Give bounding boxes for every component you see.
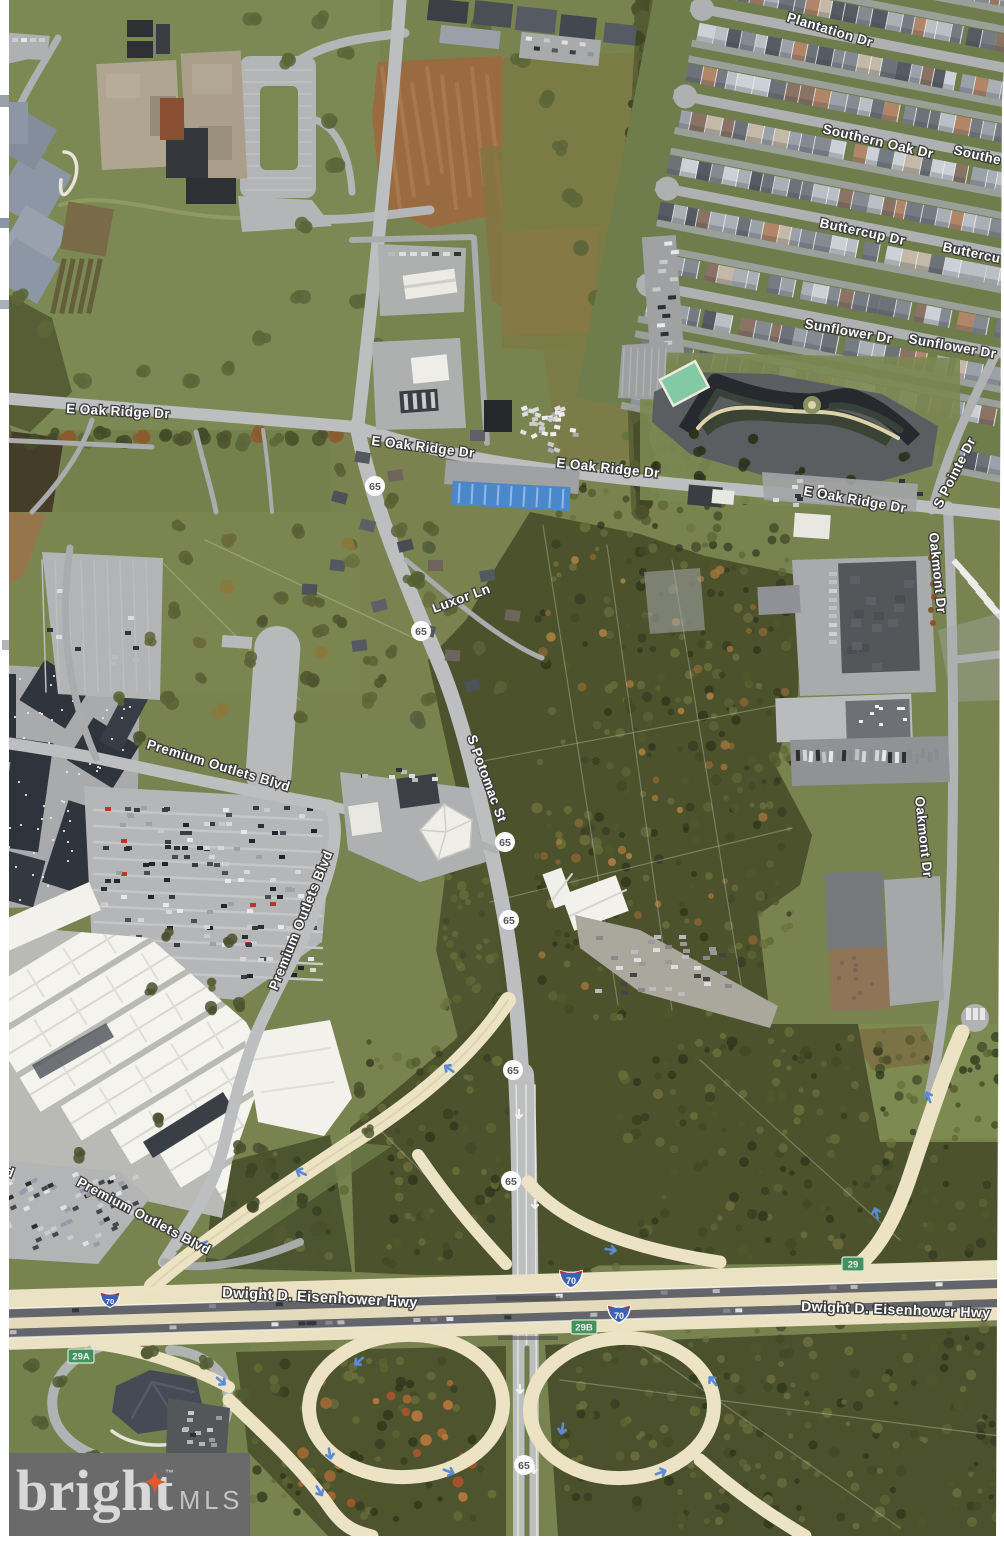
svg-text:65: 65	[503, 915, 515, 927]
svg-text:65: 65	[507, 1065, 519, 1077]
svg-text:65: 65	[505, 1176, 517, 1188]
svg-text:65: 65	[518, 1460, 530, 1472]
svg-text:65: 65	[415, 626, 427, 638]
svg-text:MLS: MLS	[179, 1487, 243, 1515]
svg-text:™: ™	[165, 1468, 174, 1478]
svg-text:65: 65	[499, 837, 511, 849]
svg-text:29: 29	[848, 1260, 859, 1271]
svg-text:70: 70	[566, 1276, 576, 1286]
svg-text:70: 70	[614, 1311, 624, 1321]
svg-text:65: 65	[369, 481, 381, 493]
svg-text:70: 70	[106, 1297, 115, 1306]
svg-text:bright: bright	[16, 1458, 174, 1523]
svg-text:29B: 29B	[575, 1323, 593, 1334]
svg-text:29A: 29A	[72, 1352, 90, 1363]
